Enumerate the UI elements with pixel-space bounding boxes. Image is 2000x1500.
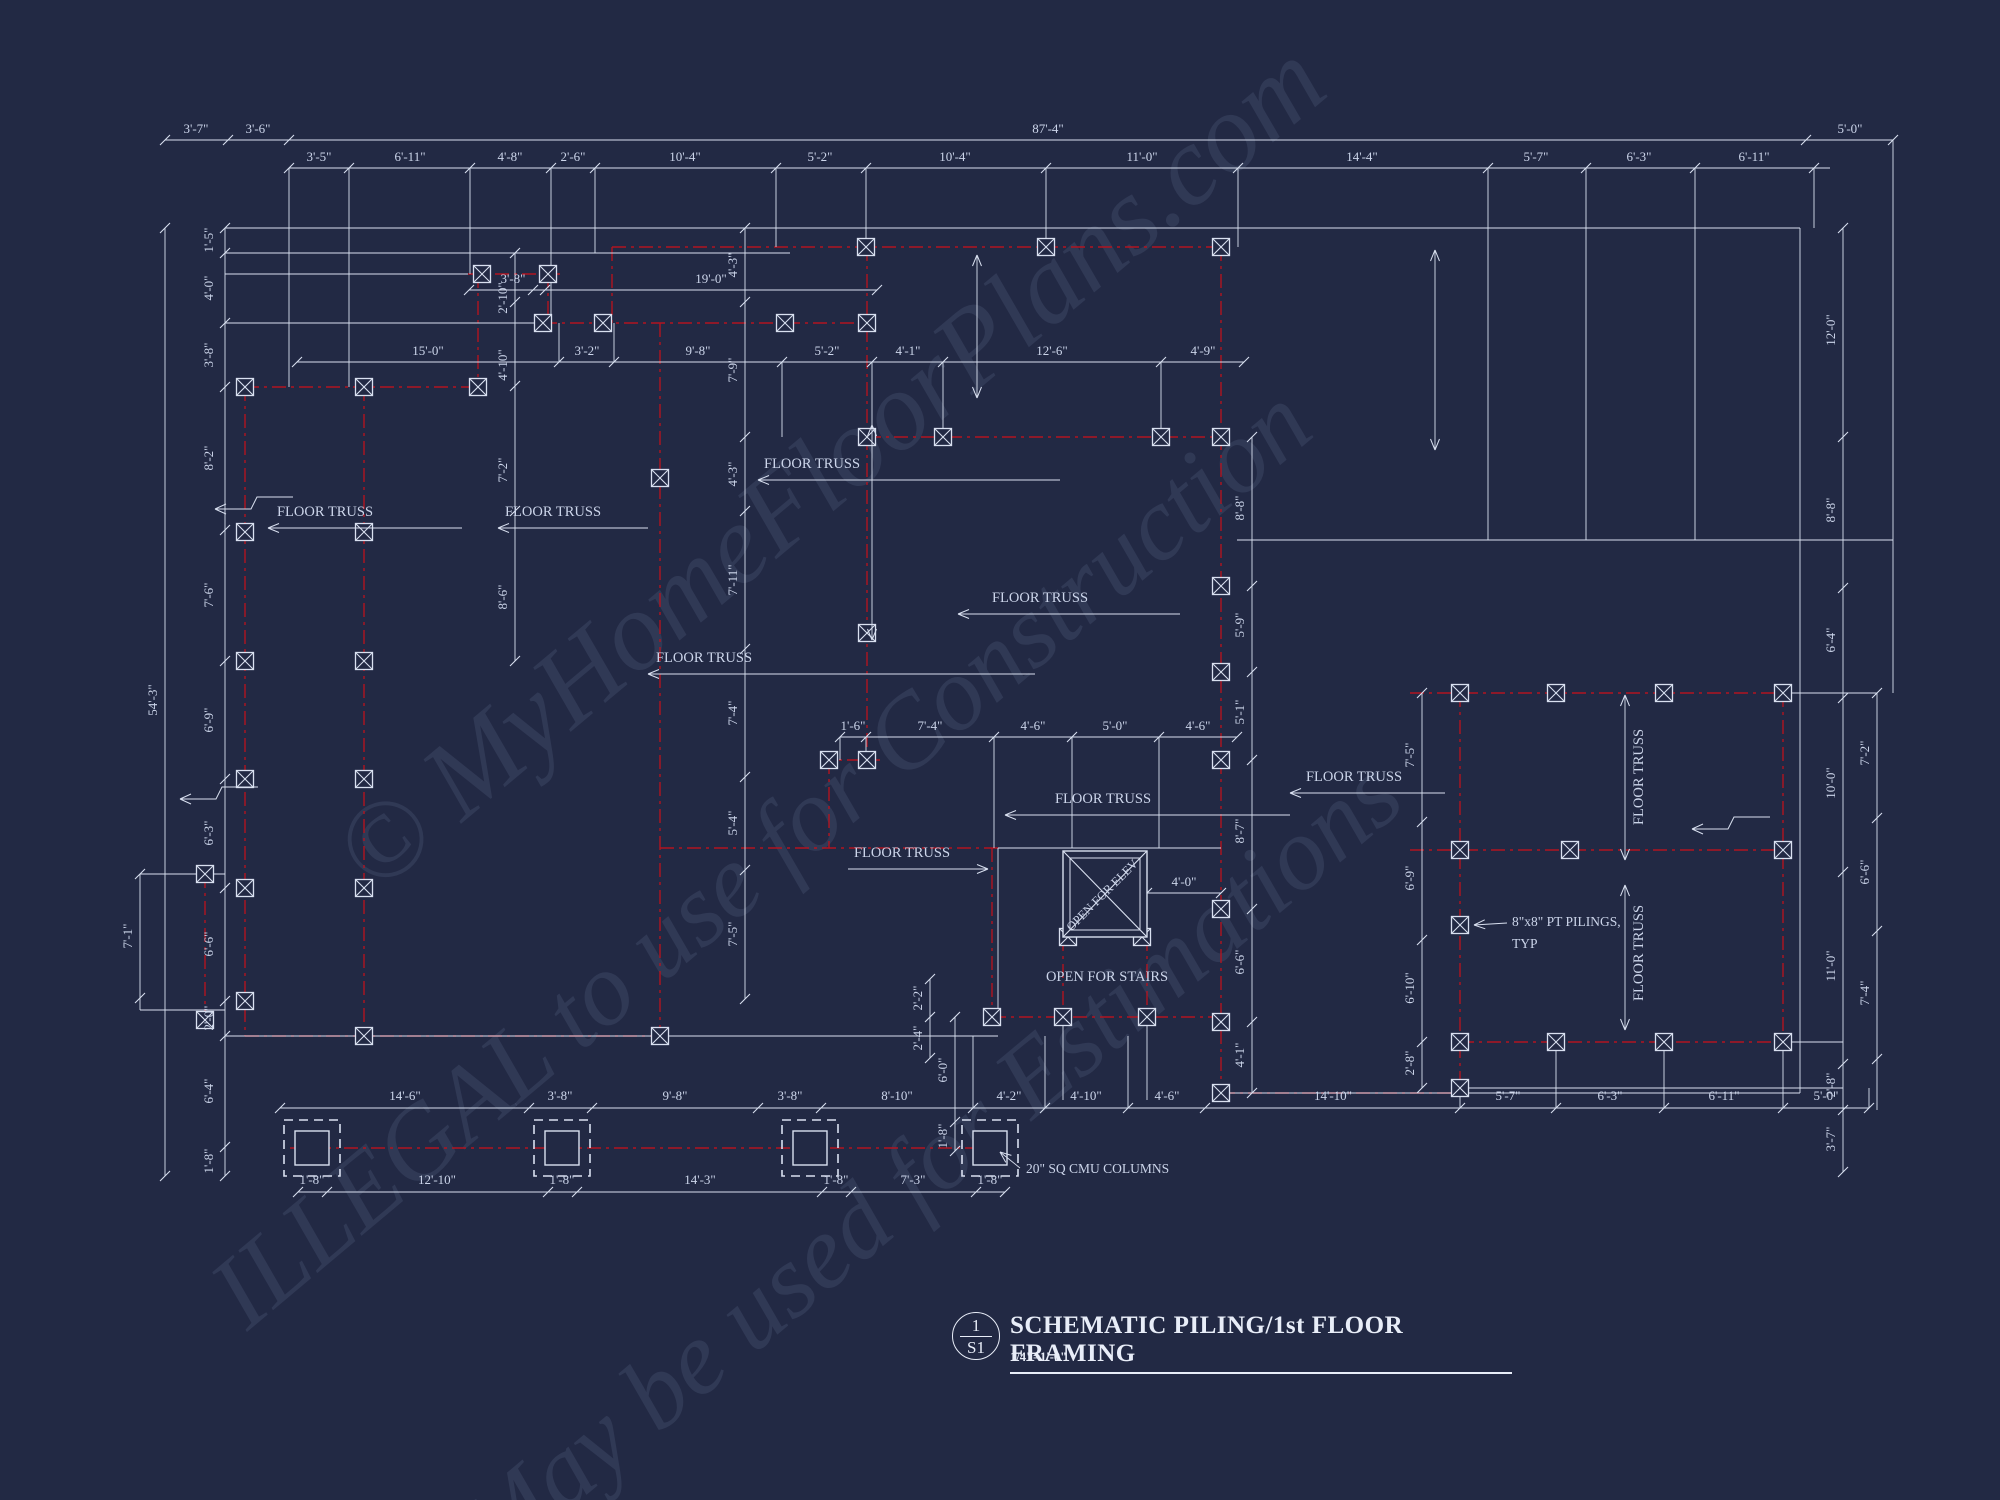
dimension-label: 5'-7" [1524, 149, 1549, 164]
dimension-label: 1'-8" [201, 1149, 216, 1174]
dimension-label: 15'-0" [412, 343, 443, 358]
zigzag-arrow [1692, 817, 1770, 829]
dimension-label: 4'-2" [997, 1088, 1022, 1103]
leader-arrowhead [977, 387, 982, 398]
leader-arrowhead [1005, 815, 1016, 820]
dimension-label: 6'-10" [1402, 972, 1417, 1003]
cmu-column-inner [793, 1131, 827, 1165]
dimension-label: 8'-10" [881, 1088, 912, 1103]
dimension-label: 4'-9" [1191, 343, 1216, 358]
dimension-label: 8'-7" [1232, 819, 1247, 844]
floor-truss-label: FLOOR TRUSS [764, 456, 860, 472]
dimension-label: 11'-0" [1823, 951, 1838, 982]
dimension-label: 19'-0" [695, 271, 726, 286]
leader-arrowhead [1621, 885, 1626, 896]
dimension-label: 6'-9" [201, 708, 216, 733]
dimension-label: 2'-8" [1823, 1073, 1838, 1098]
leader-arrowhead [1625, 885, 1630, 896]
dimension-label: 6'-6" [1857, 860, 1872, 885]
zigzag-arrowhead [1692, 829, 1703, 834]
dimension-label: 4'-6" [1186, 718, 1211, 733]
dimension-label: 8'-6" [495, 585, 510, 610]
dimension-label: 7'-9" [725, 358, 740, 383]
leader-arrowhead [973, 387, 978, 398]
detail-number: 1 [960, 1317, 992, 1337]
dimension-label: 5'-1" [1232, 700, 1247, 725]
pt-pilings-note: TYP [1512, 936, 1538, 951]
dimension-label: 4'-1" [1232, 1043, 1247, 1068]
dimension-label: 1'-8" [935, 1124, 950, 1149]
blueprint-page: © MyHomeFloorPlans.com ILLEGAL to use fo… [0, 0, 2000, 1500]
dimension-label: 4'-6" [1021, 718, 1046, 733]
leader-arrowhead [268, 528, 279, 533]
dimension-label: 6'-3" [1627, 149, 1652, 164]
dimension-label: 8'-8" [1232, 496, 1247, 521]
dimension-label: 2'-10" [495, 282, 510, 313]
leader-arrowhead [1625, 695, 1630, 706]
dimension-label: 7'-4" [918, 718, 943, 733]
dimension-label: 10'-4" [669, 149, 700, 164]
cmu-column-inner [545, 1131, 579, 1165]
dimension-label: 9'-8" [686, 343, 711, 358]
leader-arrowhead [1625, 1019, 1630, 1030]
dimension-label: 87'-4" [1032, 121, 1063, 136]
dimension-label: 6'-6" [201, 932, 216, 957]
zigzag-arrowhead [180, 799, 191, 804]
dimension-label: 10'-0" [1823, 767, 1838, 798]
dimension-label: 5'-2" [808, 149, 833, 164]
leader-arrowhead [1005, 811, 1016, 816]
dimension-label: 12'-6" [1036, 343, 1067, 358]
dimension-label: 14'-10" [1314, 1088, 1352, 1103]
dimension-label: 2'-4" [910, 1026, 925, 1051]
dimension-label: 54'-3" [145, 684, 160, 715]
dimension-label: 8'-2" [201, 446, 216, 471]
dimension-label: 3'-8" [778, 1088, 803, 1103]
dimension-label: 3'-8" [201, 343, 216, 368]
dimension-label: 2'-6" [561, 149, 586, 164]
pt-pilings-note: 8"x8" PT PILINGS, [1512, 914, 1621, 929]
dimension-label: 5'-4" [725, 811, 740, 836]
dimension-label: 2'-2" [910, 986, 925, 1011]
dimension-label: 7'-3" [901, 1172, 926, 1187]
title-block: 1 S1 SCHEMATIC PILING/1st FLOOR FRAMING … [952, 1306, 1512, 1386]
dimension-label: 1'-8" [300, 1172, 325, 1187]
dimension-label: 5'-7" [1496, 1088, 1521, 1103]
dimension-label: 12'-10" [418, 1172, 456, 1187]
zigzag-arrowhead [215, 509, 226, 514]
dimension-label: 3'-8" [548, 1088, 573, 1103]
dimension-label: 10'-4" [939, 149, 970, 164]
dimension-label: 7'-11" [725, 565, 740, 596]
dimension-label: 6'-3" [1598, 1088, 1623, 1103]
cmu-column-inner [295, 1131, 329, 1165]
dimension-label: 14'-3" [684, 1172, 715, 1187]
floor-truss-label: FLOOR TRUSS [656, 650, 752, 666]
leader-arrowhead [1621, 695, 1626, 706]
leader-arrowhead [268, 524, 279, 529]
dimension-label: 4'-0" [201, 276, 216, 301]
leader-arrowhead [1431, 250, 1436, 261]
dimension-label: 2'-0" [201, 1006, 216, 1031]
leader-arrowhead [1290, 793, 1301, 798]
dimension-label: 7'-6" [201, 583, 216, 608]
dimension-label: 4'-3" [725, 462, 740, 487]
dimension-label: 8'-8" [1823, 498, 1838, 523]
leader-arrowhead [1290, 789, 1301, 794]
dimension-label: 4'-6" [1155, 1088, 1180, 1103]
dimension-label: 14'-6" [389, 1088, 420, 1103]
dimension-label: 6'-9" [1402, 866, 1417, 891]
leader-arrowhead [1621, 1019, 1626, 1030]
dimension-label: 7'-5" [725, 922, 740, 947]
dimension-label: 6'-3" [201, 821, 216, 846]
floor-truss-label: FLOOR TRUSS [1306, 769, 1402, 785]
dimension-label: 4'-10" [1070, 1088, 1101, 1103]
zigzag-arrowhead [215, 504, 226, 509]
drawing-scale: 1/4"=1'-0" [1010, 1350, 1067, 1365]
leader-arrowhead [977, 865, 988, 870]
dimension-label: 5'-0" [1838, 121, 1863, 136]
sheet-number: S1 [953, 1339, 999, 1356]
dimension-label: 1'-6" [841, 718, 866, 733]
open-for-stairs-label: OPEN FOR STAIRS [1046, 969, 1168, 985]
leader-arrowhead [648, 674, 659, 679]
cmu-columns-note: 20" SQ CMU COLUMNS [1026, 1161, 1169, 1176]
leader-arrowhead [498, 528, 509, 533]
dimension-label: 6'-4" [1823, 628, 1838, 653]
dimension-label: 3'-7" [184, 121, 209, 136]
dimension-label: 3'-2" [575, 343, 600, 358]
dimension-label: 5'-0" [1103, 718, 1128, 733]
dimension-label: 9'-8" [663, 1088, 688, 1103]
zigzag-arrowhead [180, 794, 191, 799]
leader-arrowhead [1435, 439, 1440, 450]
dimension-label: 1'-8" [978, 1172, 1003, 1187]
dimension-label: 1'-8" [824, 1172, 849, 1187]
leader-arrowhead [498, 524, 509, 529]
dimension-label: 5'-2" [815, 343, 840, 358]
dimension-label: 1'-5" [201, 228, 216, 253]
dimension-label: 3'-5" [307, 149, 332, 164]
leader-arrowhead [977, 255, 982, 266]
dimension-label: 7'-2" [1857, 741, 1872, 766]
dimension-label: 3'-7" [1823, 1127, 1838, 1152]
dimension-label: 6'-0" [935, 1058, 950, 1083]
zigzag-arrow [180, 787, 258, 799]
leader-arrowhead [758, 476, 769, 481]
dimension-label: 4'-1" [896, 343, 921, 358]
dimension-label: 6'-4" [201, 1079, 216, 1104]
zigzag-arrowhead [1692, 824, 1703, 829]
leader-arrowhead [648, 670, 659, 675]
drawing-title: SCHEMATIC PILING/1st FLOOR FRAMING [1010, 1312, 1512, 1374]
dimension-label: 7'-1" [120, 924, 135, 949]
leader-arrowhead [758, 480, 769, 485]
leader-arrowhead [1474, 925, 1485, 929]
dimension-label: 12'-0" [1823, 314, 1838, 345]
dimension-label: 3'-6" [246, 121, 271, 136]
dimension-label: 11'-0" [1127, 149, 1158, 164]
dimension-label: 14'-4" [1346, 149, 1377, 164]
leader-arrowhead [973, 255, 978, 266]
dimension-label: 7'-4" [725, 701, 740, 726]
floor-truss-label: FLOOR TRUSS [1055, 791, 1151, 807]
dimension-label: 2'-8" [1402, 1051, 1417, 1076]
leader-arrowhead [1435, 250, 1440, 261]
dimension-label: 7'-5" [1402, 743, 1417, 768]
dimension-label: 6'-11" [395, 149, 426, 164]
leader-arrowhead [977, 869, 988, 874]
dimension-label: 5'-9" [1232, 613, 1247, 638]
leader-line [1474, 923, 1507, 925]
floor-truss-label: FLOOR TRUSS [992, 590, 1088, 606]
floor-truss-label: FLOOR TRUSS [854, 845, 950, 861]
dimension-label: 6'-6" [1232, 950, 1247, 975]
framing-plan-drawing: 3'-7"3'-6"87'-4"5'-0"3'-5"6'-11"4'-8"2'-… [0, 0, 2000, 1500]
dimension-label: 6'-11" [1739, 149, 1770, 164]
dimension-label: 4'-8" [498, 149, 523, 164]
dimension-label: 1'-8" [550, 1172, 575, 1187]
dimension-label: 4'-3" [725, 253, 740, 278]
floor-truss-label: FLOOR TRUSS [277, 504, 373, 520]
dimension-label: 7'-2" [495, 458, 510, 483]
dimension-label: 6'-11" [1709, 1088, 1740, 1103]
dimension-label: 7'-4" [1857, 981, 1872, 1006]
floor-truss-label: FLOOR TRUSS [505, 504, 601, 520]
leader-arrowhead [1431, 439, 1436, 450]
floor-truss-label: FLOOR TRUSS [1631, 905, 1647, 1001]
floor-truss-label: FLOOR TRUSS [1631, 729, 1647, 825]
dimension-label: 4'-0" [1172, 874, 1197, 889]
dimension-label: 4'-10" [495, 349, 510, 380]
cmu-column-inner [973, 1131, 1007, 1165]
leader-arrowhead [958, 610, 969, 615]
leader-arrowhead [958, 614, 969, 619]
leader-arrowhead [1621, 849, 1626, 860]
detail-bubble: 1 S1 [952, 1312, 1000, 1360]
